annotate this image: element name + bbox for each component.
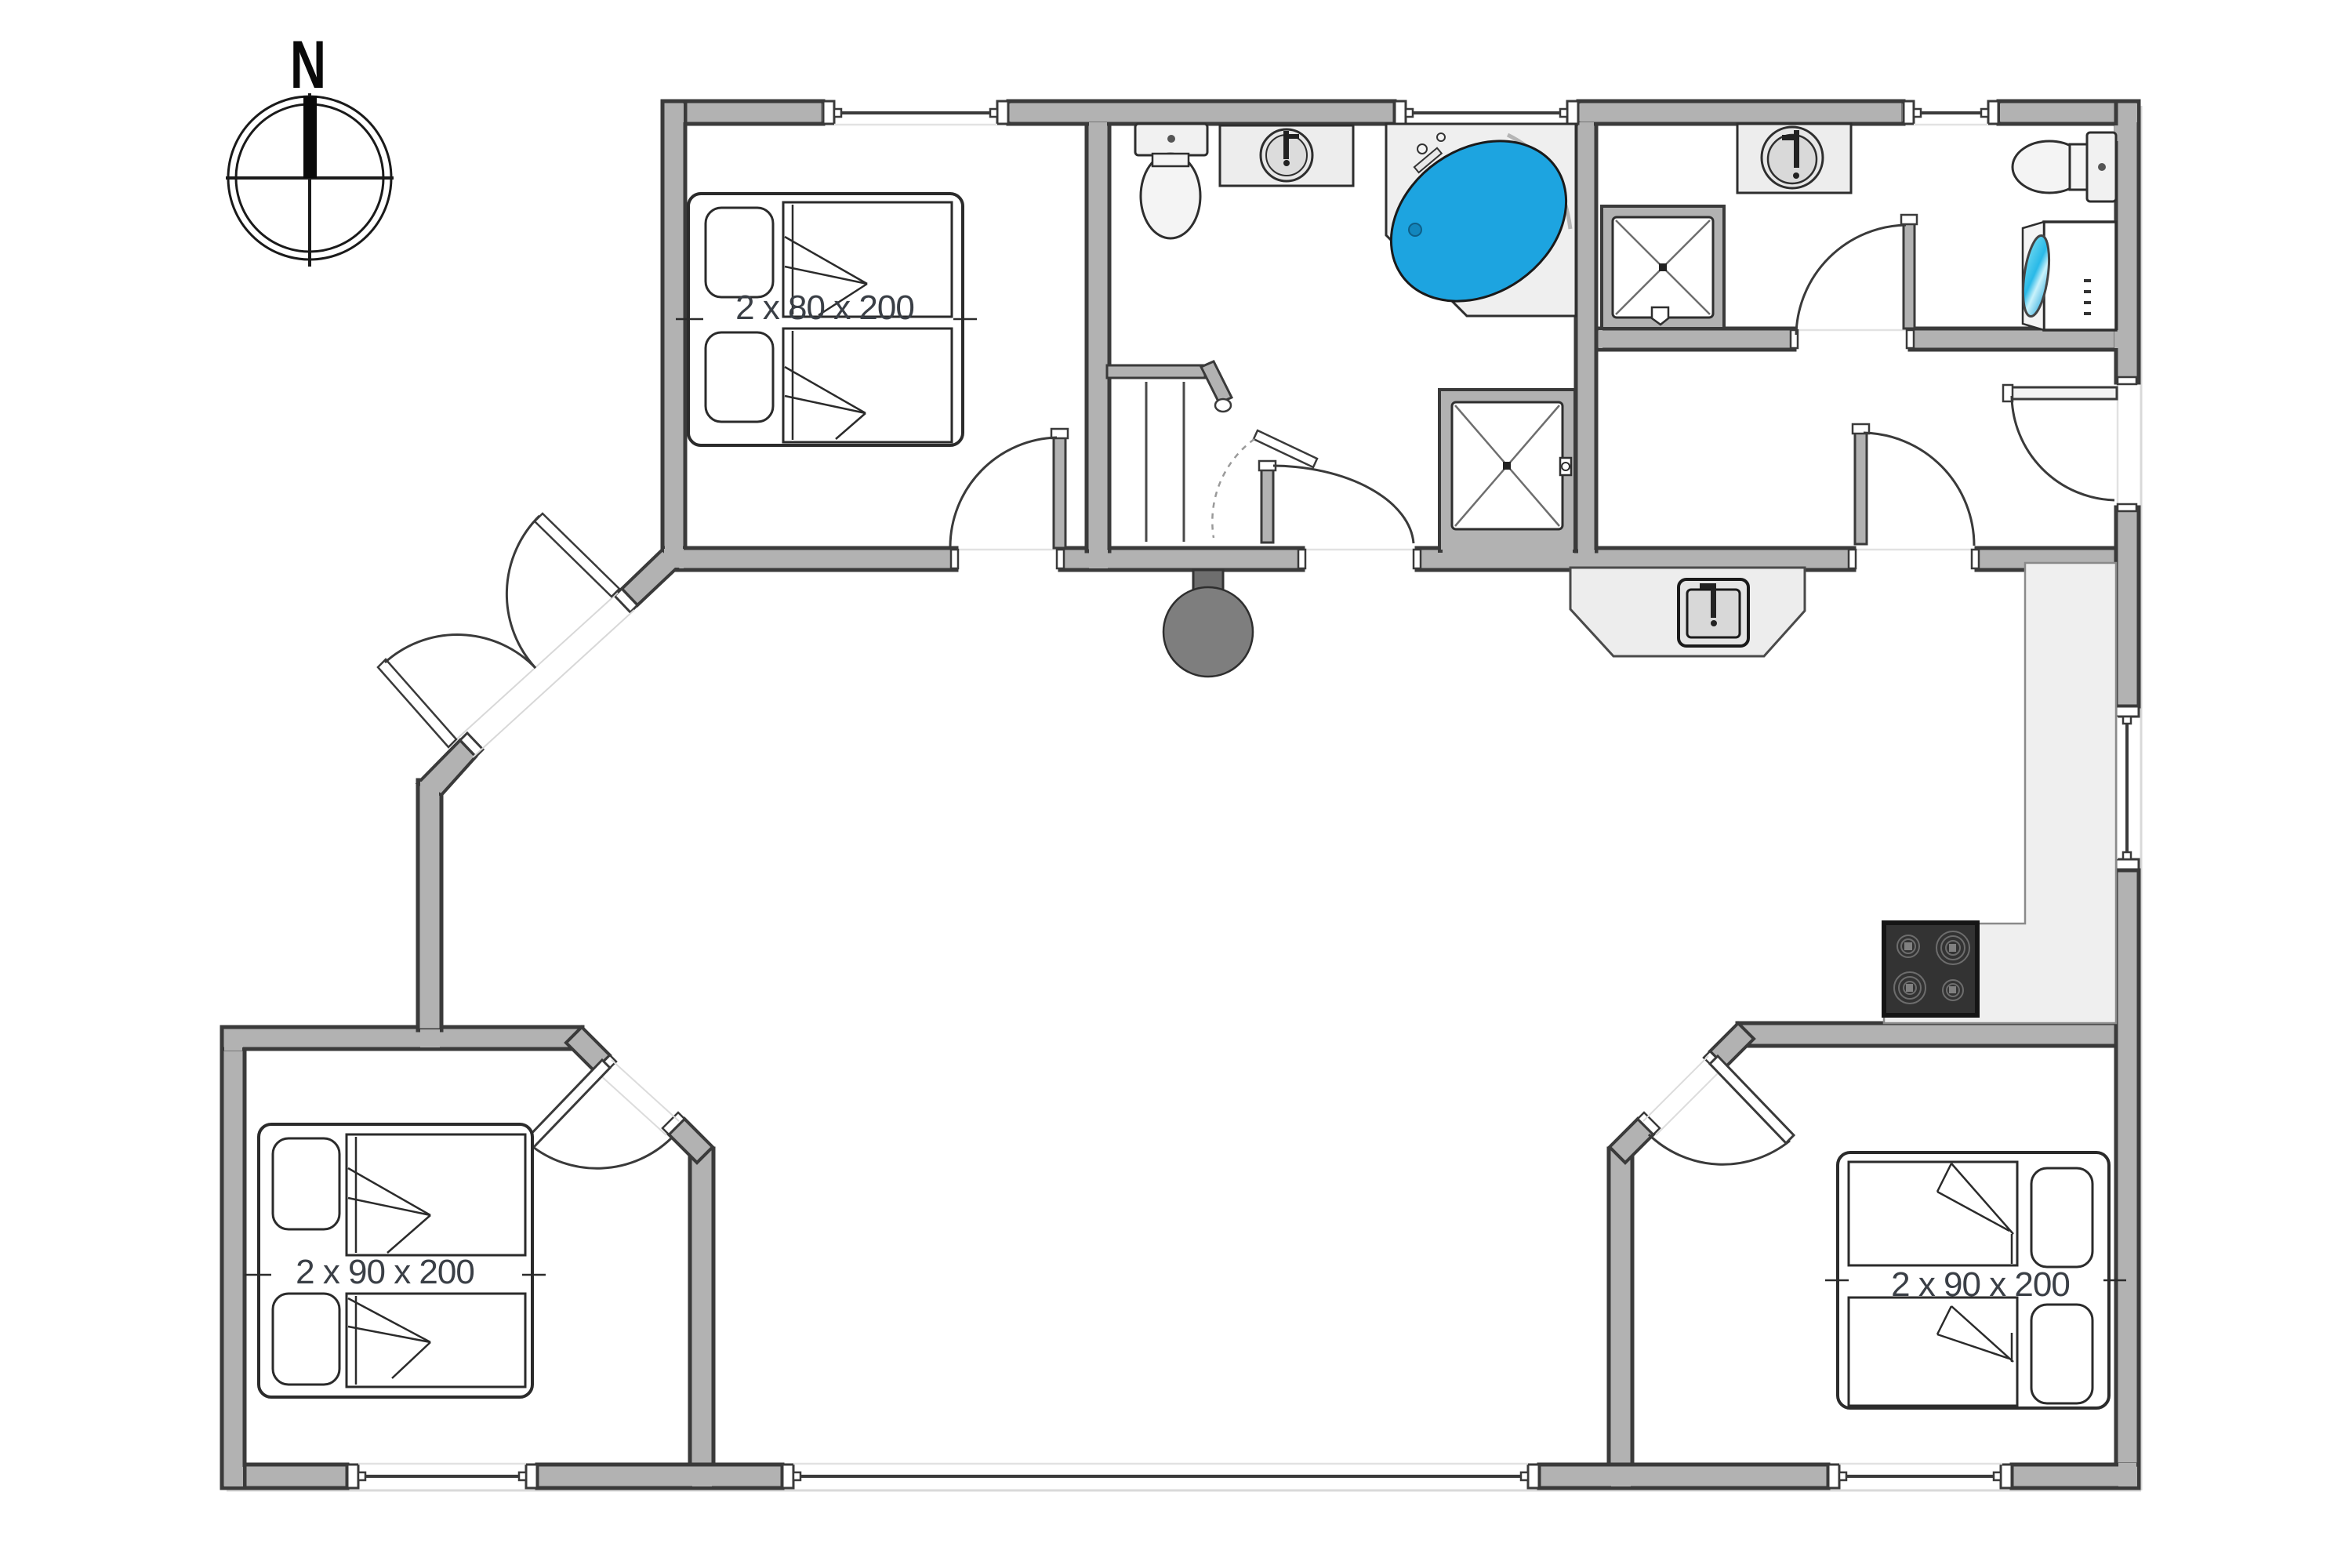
- svg-text:N: N: [290, 28, 326, 103]
- svg-text:2 x 90 x 200: 2 x 90 x 200: [1891, 1265, 2070, 1304]
- svg-text:2 x 90 x 200: 2 x 90 x 200: [296, 1253, 474, 1291]
- svg-text:2 x 80 x 200: 2 x 80 x 200: [735, 289, 914, 327]
